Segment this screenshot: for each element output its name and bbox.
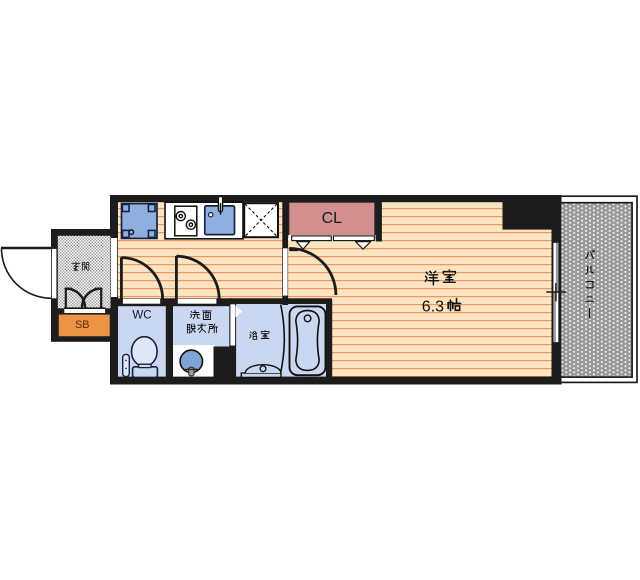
svg-text:CL: CL (322, 210, 343, 227)
svg-text:SB: SB (75, 319, 89, 331)
svg-text:6.3: 6.3 (422, 299, 444, 316)
svg-text:WC: WC (132, 310, 151, 322)
